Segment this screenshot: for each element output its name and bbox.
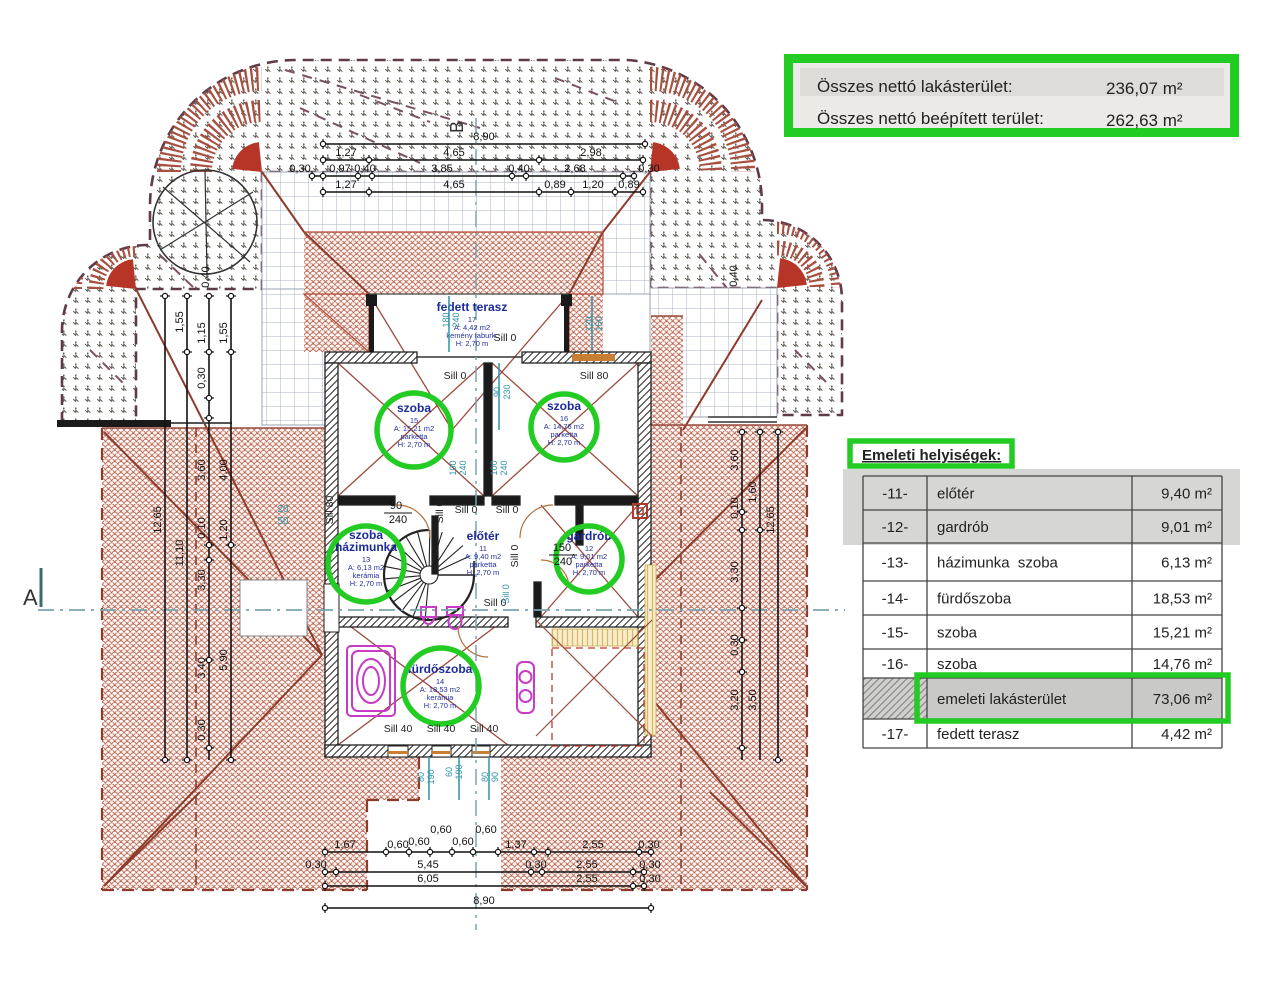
svg-text:3,60: 3,60: [196, 459, 208, 480]
svg-text:Sill 0: Sill 0: [455, 504, 478, 516]
svg-text:fürdőszoba: fürdőszoba: [408, 662, 473, 676]
svg-text:gardrób: gardrób: [937, 519, 989, 536]
svg-text:Összes nettó lakásterület:: Összes nettó lakásterület:: [817, 77, 1013, 96]
svg-text:0,60: 0,60: [452, 836, 473, 848]
svg-text:szoba: szoba: [547, 399, 581, 413]
svg-text:3,30: 3,30: [729, 561, 741, 582]
svg-text:-14-: -14-: [882, 591, 909, 608]
svg-text:11,10: 11,10: [174, 540, 186, 567]
svg-text:Összes nettó beépített terület: Összes nettó beépített terület:: [817, 109, 1044, 128]
svg-text:-16-: -16-: [882, 656, 909, 673]
svg-text:15,21 m²: 15,21 m²: [1153, 625, 1212, 642]
svg-text:9,01 m²: 9,01 m²: [1161, 519, 1212, 536]
svg-text:Emeleti helyiségek:: Emeleti helyiségek:: [862, 447, 1001, 464]
svg-text:1,67: 1,67: [334, 839, 355, 851]
svg-text:6,13 m²: 6,13 m²: [1161, 555, 1212, 572]
svg-text:5,45: 5,45: [417, 859, 438, 871]
svg-text:240: 240: [458, 460, 468, 475]
svg-text:emeleti lakásterület: emeleti lakásterület: [937, 691, 1067, 708]
svg-text:3,30: 3,30: [196, 569, 208, 590]
svg-text:4,65: 4,65: [443, 147, 464, 159]
svg-text:előtér: előtér: [467, 529, 500, 543]
svg-text:0,40: 0,40: [508, 163, 529, 175]
svg-text:szoba: szoba: [397, 401, 431, 415]
svg-text:0,40: 0,40: [200, 266, 212, 287]
svg-text:fedett terasz: fedett terasz: [937, 726, 1020, 743]
svg-text:4,42 m²: 4,42 m²: [1161, 726, 1212, 743]
svg-text:0,40: 0,40: [728, 265, 740, 286]
svg-text:5,90: 5,90: [218, 649, 230, 670]
svg-text:73,06 m²: 73,06 m²: [1153, 691, 1212, 708]
svg-text:0,30: 0,30: [525, 859, 546, 871]
svg-text:házimunka: házimunka: [335, 540, 397, 554]
svg-text:0,60: 0,60: [475, 824, 496, 836]
svg-text:90: 90: [492, 387, 502, 397]
svg-text:B: B: [447, 121, 467, 133]
svg-text:18,53 m²: 18,53 m²: [1153, 591, 1212, 608]
svg-text:H: 2,70 m: H: 2,70 m: [573, 568, 606, 577]
svg-text:Sill 40: Sill 40: [427, 723, 456, 735]
svg-text:házimunka szoba: házimunka szoba: [937, 555, 1059, 572]
svg-text:2,68: 2,68: [564, 163, 585, 175]
svg-text:-11-: -11-: [882, 486, 908, 503]
svg-text:0,60: 0,60: [387, 839, 408, 851]
svg-text:0,30: 0,30: [638, 839, 659, 851]
svg-text:1,15: 1,15: [196, 322, 208, 343]
svg-text:240: 240: [451, 312, 461, 327]
svg-text:1,37: 1,37: [505, 839, 526, 851]
svg-text:2,55: 2,55: [576, 859, 597, 871]
svg-text:Sill 0: Sill 0: [501, 584, 511, 604]
svg-text:0,30: 0,30: [196, 719, 208, 740]
svg-text:Sill 40: Sill 40: [384, 723, 413, 735]
svg-text:0,97: 0,97: [329, 163, 350, 175]
svg-text:4,00: 4,00: [218, 459, 230, 480]
svg-text:50: 50: [277, 516, 289, 527]
svg-text:8,90: 8,90: [473, 895, 494, 907]
svg-text:-17-: -17-: [882, 726, 909, 743]
svg-text:0,30: 0,30: [196, 367, 208, 388]
svg-text:Sill 40: Sill 40: [470, 723, 499, 735]
svg-text:Sill 0: Sill 0: [494, 332, 517, 344]
svg-text:H: 2,70 m: H: 2,70 m: [398, 440, 431, 449]
svg-text:100: 100: [448, 460, 458, 475]
svg-text:90: 90: [390, 500, 402, 512]
svg-text:150: 150: [594, 316, 604, 331]
svg-text:9,40 m²: 9,40 m²: [1161, 486, 1212, 503]
svg-text:0,30: 0,30: [639, 873, 660, 885]
svg-text:3,60: 3,60: [729, 449, 741, 470]
svg-text:-15-: -15-: [882, 625, 909, 642]
svg-text:0,30: 0,30: [638, 163, 659, 175]
svg-text:0,89: 0,89: [544, 179, 565, 191]
svg-text:szoba: szoba: [937, 656, 978, 673]
svg-text:3,50: 3,50: [747, 689, 759, 710]
svg-text:100: 100: [489, 460, 499, 475]
svg-text:230: 230: [502, 384, 512, 399]
svg-text:1,55: 1,55: [174, 311, 186, 332]
svg-text:2,55: 2,55: [582, 839, 603, 851]
svg-text:Sill 0: Sill 0: [496, 504, 519, 516]
svg-text:0,30: 0,30: [305, 859, 326, 871]
svg-text:90: 90: [490, 772, 500, 782]
svg-text:0,40: 0,40: [354, 163, 375, 175]
svg-text:240: 240: [389, 514, 407, 526]
svg-text:1,20: 1,20: [218, 519, 230, 540]
svg-text:3,85: 3,85: [431, 163, 452, 175]
svg-text:0,30: 0,30: [289, 163, 310, 175]
svg-text:0,89: 0,89: [618, 179, 639, 191]
svg-text:8,90: 8,90: [473, 131, 494, 143]
svg-text:3,40: 3,40: [196, 657, 208, 678]
svg-text:szoba: szoba: [937, 625, 978, 642]
svg-text:12,65: 12,65: [152, 506, 164, 534]
svg-text:236,07 m²: 236,07 m²: [1106, 79, 1183, 98]
svg-text:fedett terasz: fedett terasz: [437, 300, 508, 314]
svg-text:előtér: előtér: [937, 486, 975, 503]
svg-text:-13-: -13-: [882, 555, 909, 572]
svg-text:0,60: 0,60: [408, 836, 429, 848]
svg-text:Sill 0: Sill 0: [444, 370, 467, 382]
svg-text:6,05: 6,05: [417, 873, 438, 885]
svg-text:1,60: 1,60: [747, 481, 759, 502]
svg-text:60: 60: [444, 767, 454, 777]
svg-text:0,60: 0,60: [430, 824, 451, 836]
svg-text:80: 80: [416, 772, 426, 782]
svg-text:12,65: 12,65: [765, 506, 777, 534]
svg-text:0,10: 0,10: [196, 517, 208, 538]
svg-text:0,10: 0,10: [729, 497, 741, 518]
svg-text:14,76 m²: 14,76 m²: [1153, 656, 1212, 673]
svg-text:4,65: 4,65: [443, 179, 464, 191]
svg-text:fürdőszoba: fürdőszoba: [937, 591, 1012, 608]
svg-text:20: 20: [277, 504, 289, 515]
svg-text:240: 240: [499, 460, 509, 475]
svg-text:Sill 0: Sill 0: [434, 500, 446, 523]
svg-text:H: 2,70 m: H: 2,70 m: [350, 579, 383, 588]
svg-text:2,98: 2,98: [580, 147, 601, 159]
svg-text:1,55: 1,55: [218, 322, 230, 343]
svg-text:190: 190: [426, 769, 436, 784]
svg-text:3,20: 3,20: [729, 689, 741, 710]
svg-text:H: 2,70 m: H: 2,70 m: [548, 438, 581, 447]
svg-text:1,27: 1,27: [335, 179, 356, 191]
svg-text:0,30: 0,30: [729, 634, 741, 655]
svg-text:H: 2,70 m: H: 2,70 m: [467, 568, 500, 577]
svg-text:150: 150: [553, 542, 571, 554]
svg-text:2,55: 2,55: [576, 873, 597, 885]
svg-text:0,30: 0,30: [639, 859, 660, 871]
svg-text:Sill 80: Sill 80: [580, 370, 609, 382]
svg-text:1,27: 1,27: [335, 147, 356, 159]
svg-text:262,63 m²: 262,63 m²: [1106, 111, 1183, 130]
svg-text:H: 2,70 m: H: 2,70 m: [424, 701, 457, 710]
svg-text:Sill 0: Sill 0: [509, 544, 521, 567]
svg-text:A: A: [23, 585, 38, 610]
svg-text:Sill 80: Sill 80: [324, 496, 336, 525]
svg-text:H: 2,70 m: H: 2,70 m: [456, 339, 489, 348]
svg-text:1,20: 1,20: [582, 179, 603, 191]
svg-text:240: 240: [554, 556, 572, 568]
svg-text:-12-: -12-: [882, 519, 909, 536]
